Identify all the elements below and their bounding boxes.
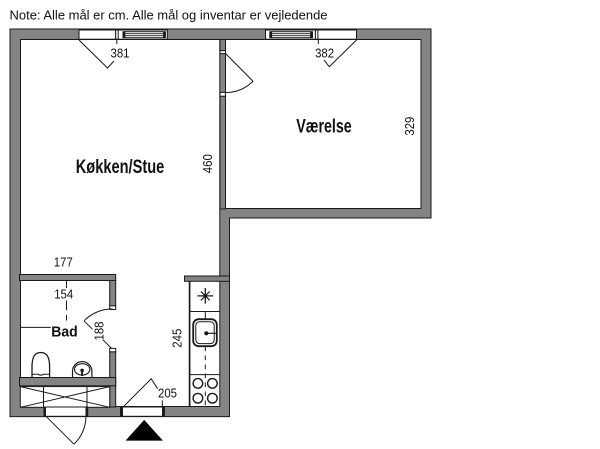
svg-text:Værelse: Værelse bbox=[296, 116, 352, 137]
svg-text:Note: Alle mål er cm. Alle mål: Note: Alle mål er cm. Alle mål og invent… bbox=[10, 8, 328, 22]
svg-text:245: 245 bbox=[170, 329, 185, 348]
svg-text:205: 205 bbox=[158, 386, 177, 401]
svg-text:177: 177 bbox=[54, 254, 73, 269]
svg-text:382: 382 bbox=[315, 46, 334, 61]
svg-text:381: 381 bbox=[111, 46, 130, 61]
svg-text:Bad: Bad bbox=[51, 325, 78, 341]
svg-text:329: 329 bbox=[402, 117, 417, 136]
svg-text:188: 188 bbox=[91, 322, 106, 341]
svg-text:Køkken/Stue: Køkken/Stue bbox=[76, 157, 165, 178]
svg-text:460: 460 bbox=[200, 154, 215, 173]
svg-text:154: 154 bbox=[54, 287, 73, 302]
